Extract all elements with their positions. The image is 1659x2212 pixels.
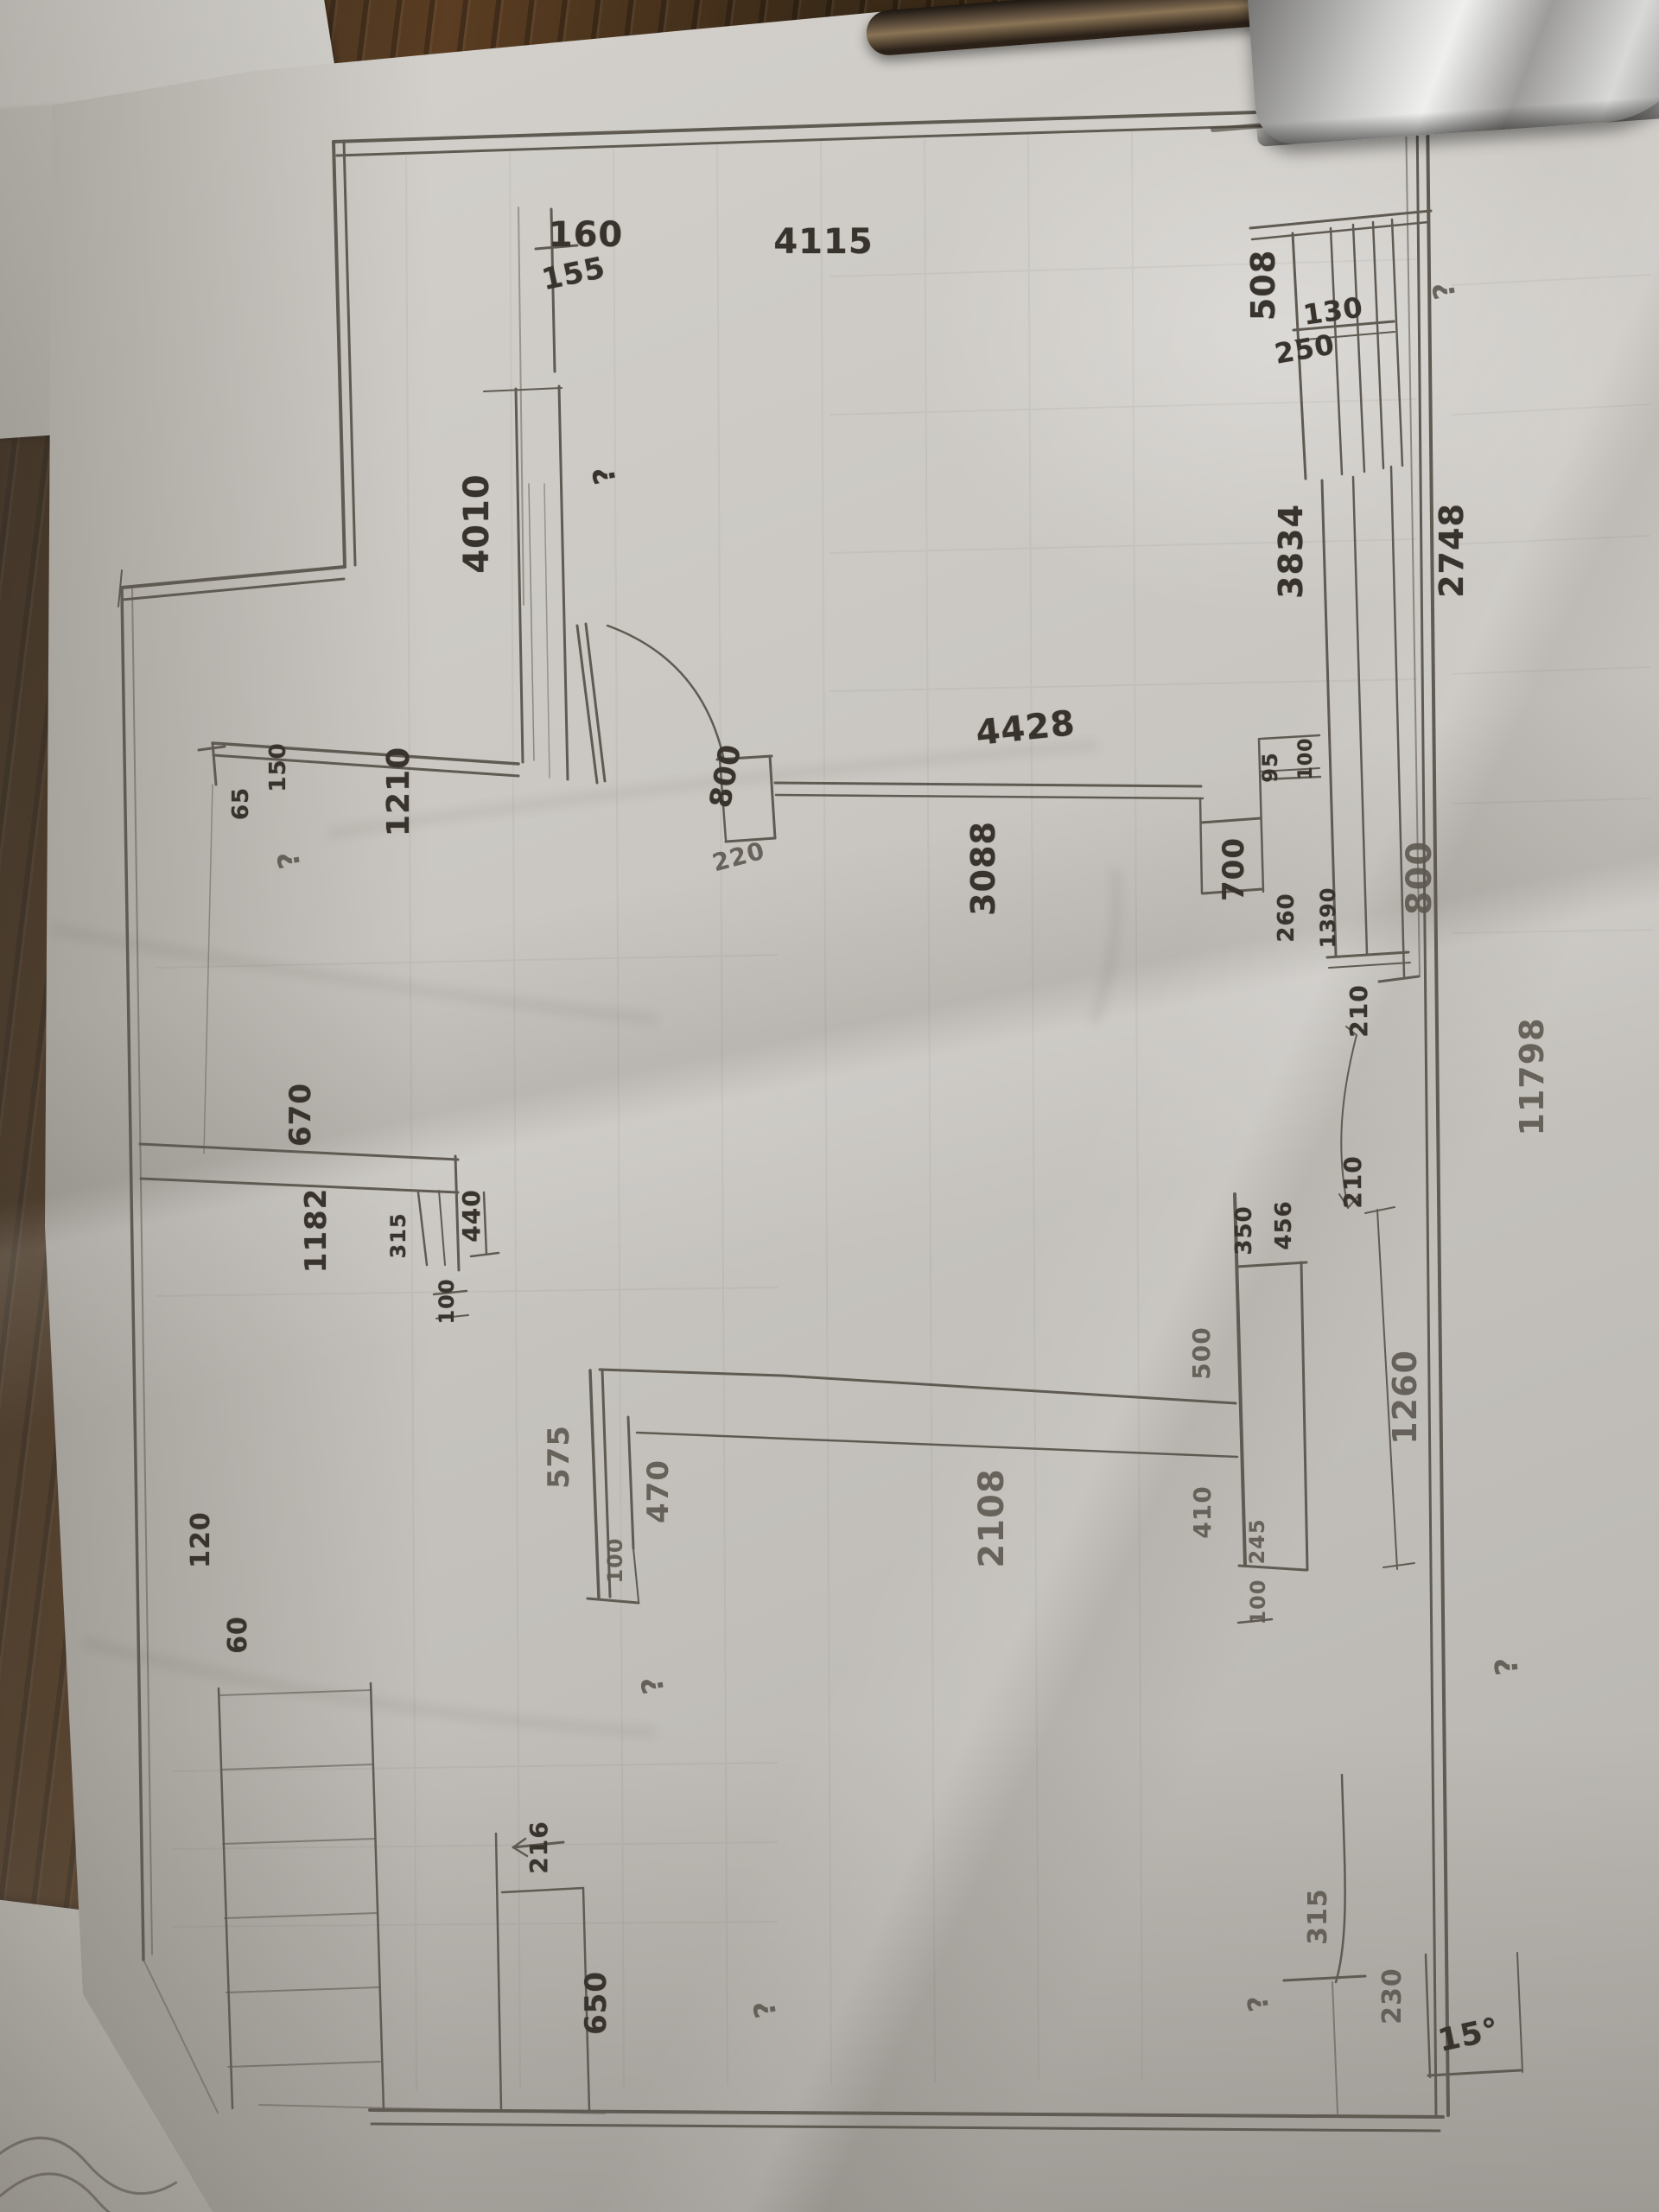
dimension-label: 4428	[975, 706, 1077, 751]
dimension-label: 508	[1247, 250, 1280, 321]
dimension-label: 250	[1273, 330, 1337, 368]
dimension-label: 65	[230, 787, 252, 820]
dimension-label: 500	[1190, 1326, 1214, 1379]
question-mark: ?	[749, 1998, 781, 2020]
dimension-label: 150	[267, 742, 289, 791]
dimension-label: 2748	[1435, 503, 1468, 598]
dimension-label: 470	[644, 1459, 673, 1523]
dimension-label: 120	[188, 1511, 214, 1568]
dimension-label: 1260	[1389, 1350, 1421, 1445]
dimension-label: 3834	[1274, 504, 1307, 599]
dimension-label: 230	[1380, 1967, 1406, 2024]
dimension-label: 100	[1248, 1579, 1268, 1624]
dimension-label: 210	[1341, 1155, 1365, 1208]
dimension-label: 130	[1301, 293, 1365, 328]
dimension-label: 3088	[967, 821, 1000, 916]
dimension-label: 2108	[975, 1468, 1009, 1567]
dimension-label: 100	[436, 1278, 457, 1324]
dimension-label: 700	[1219, 837, 1249, 901]
question-mark: ?	[273, 849, 305, 871]
dimension-label: 4010	[460, 474, 494, 573]
dimension-label: 1390	[1318, 887, 1338, 949]
dimension-label: 11798	[1516, 1017, 1548, 1135]
dimension-label: 1210	[384, 747, 415, 836]
dimension-label: 4115	[773, 225, 873, 259]
dimension-label: 210	[1347, 984, 1371, 1037]
dimension-label: 245	[1247, 1518, 1268, 1564]
dimension-label: 155	[539, 253, 607, 296]
question-mark: ?	[588, 464, 620, 486]
dimension-label: 60	[226, 1616, 251, 1654]
dimension-label: 15°	[1435, 2014, 1502, 2057]
dimension-label: 670	[286, 1083, 315, 1147]
dimension-label: 575	[544, 1425, 574, 1489]
dimension-label: 800	[706, 742, 746, 810]
question-mark: ?	[1243, 1993, 1274, 2014]
question-mark: ?	[637, 1674, 669, 1696]
dimension-label: 160	[549, 218, 624, 252]
dimension-label: 260	[1275, 893, 1298, 942]
dimension-labels: 1601554115508?130250383427484010?4428308…	[0, 0, 1659, 2212]
dimension-label: 315	[388, 1212, 409, 1258]
dimension-label: 440	[460, 1189, 484, 1242]
photo-of-floorplan-sketch: 1601554115508?130250383427484010?4428308…	[0, 0, 1659, 2212]
dimension-label: 410	[1191, 1485, 1215, 1538]
dimension-label: 100	[1297, 738, 1316, 780]
question-mark: ?	[1491, 1656, 1524, 1677]
dimension-label: 650	[582, 1971, 611, 2035]
dimension-label: 95	[1260, 752, 1281, 782]
dimension-label: 216	[527, 1821, 551, 1873]
dimension-label: 220	[710, 839, 768, 876]
dimension-label: 100	[605, 1537, 626, 1583]
dimension-label: 350	[1233, 1205, 1255, 1255]
dimension-label: 800	[1402, 841, 1437, 916]
dimension-label: 1182	[302, 1188, 331, 1274]
question-mark: ?	[1428, 279, 1460, 302]
dimension-label: 315	[1306, 1888, 1332, 1945]
dimension-label: 456	[1273, 1200, 1295, 1249]
